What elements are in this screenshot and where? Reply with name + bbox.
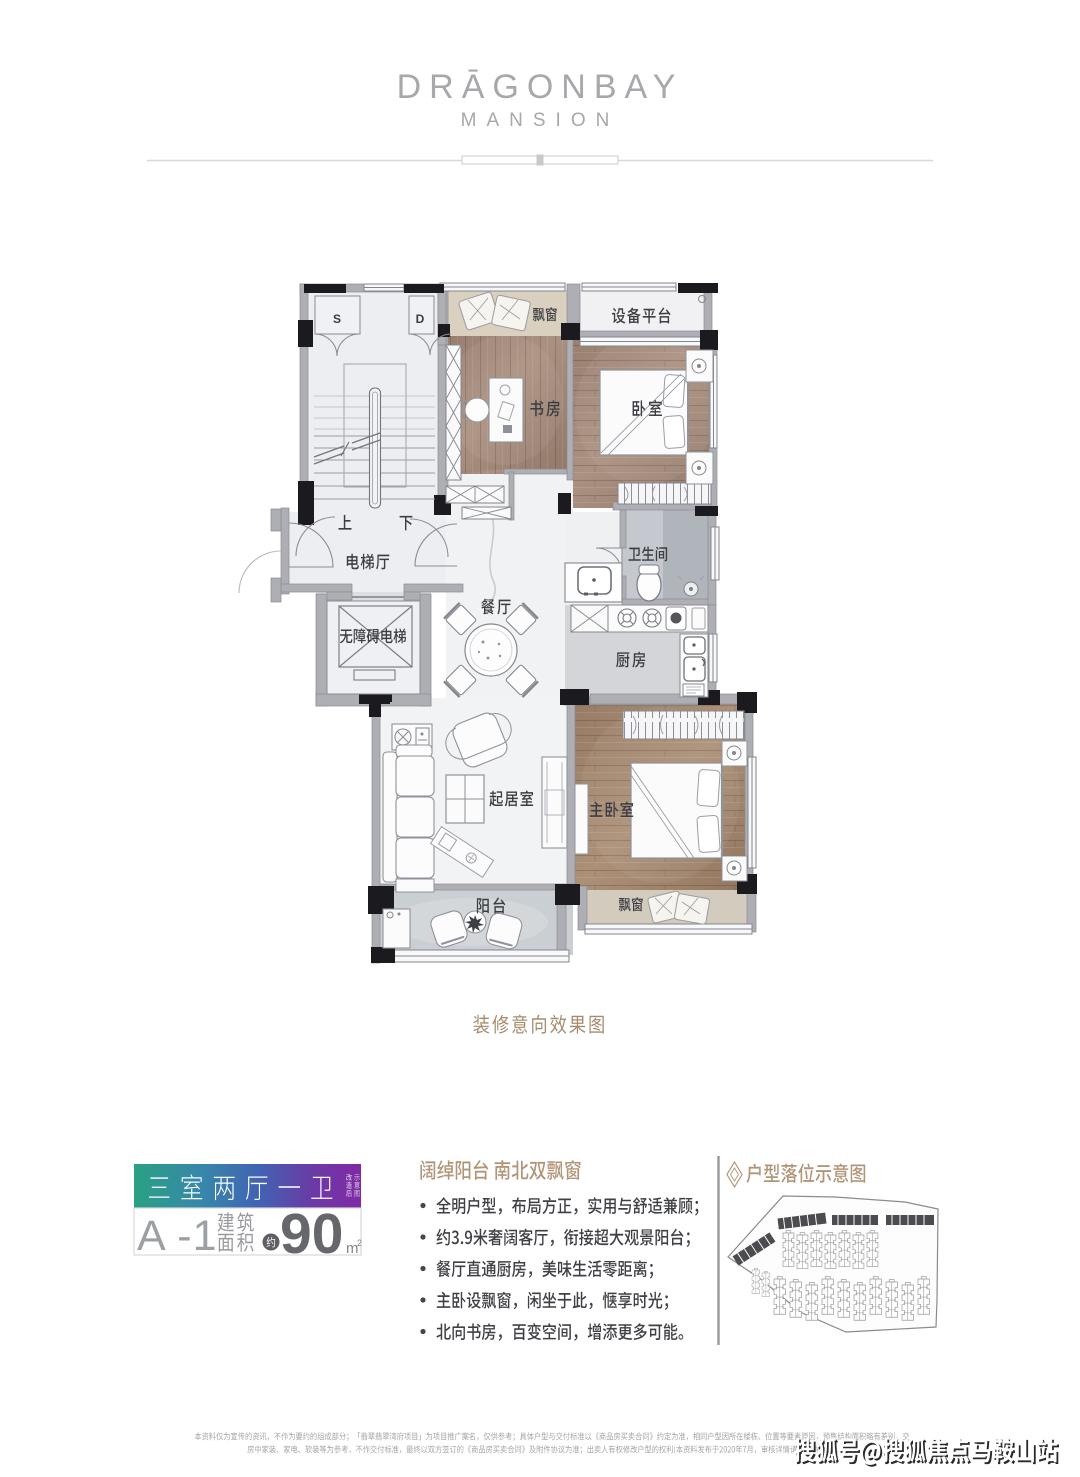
svg-text:90: 90 — [280, 1202, 343, 1266]
svg-text:S: S — [333, 312, 341, 326]
svg-text:D: D — [416, 312, 425, 326]
svg-text:2: 2 — [357, 1238, 362, 1248]
svg-text:A -1: A -1 — [137, 1212, 218, 1260]
